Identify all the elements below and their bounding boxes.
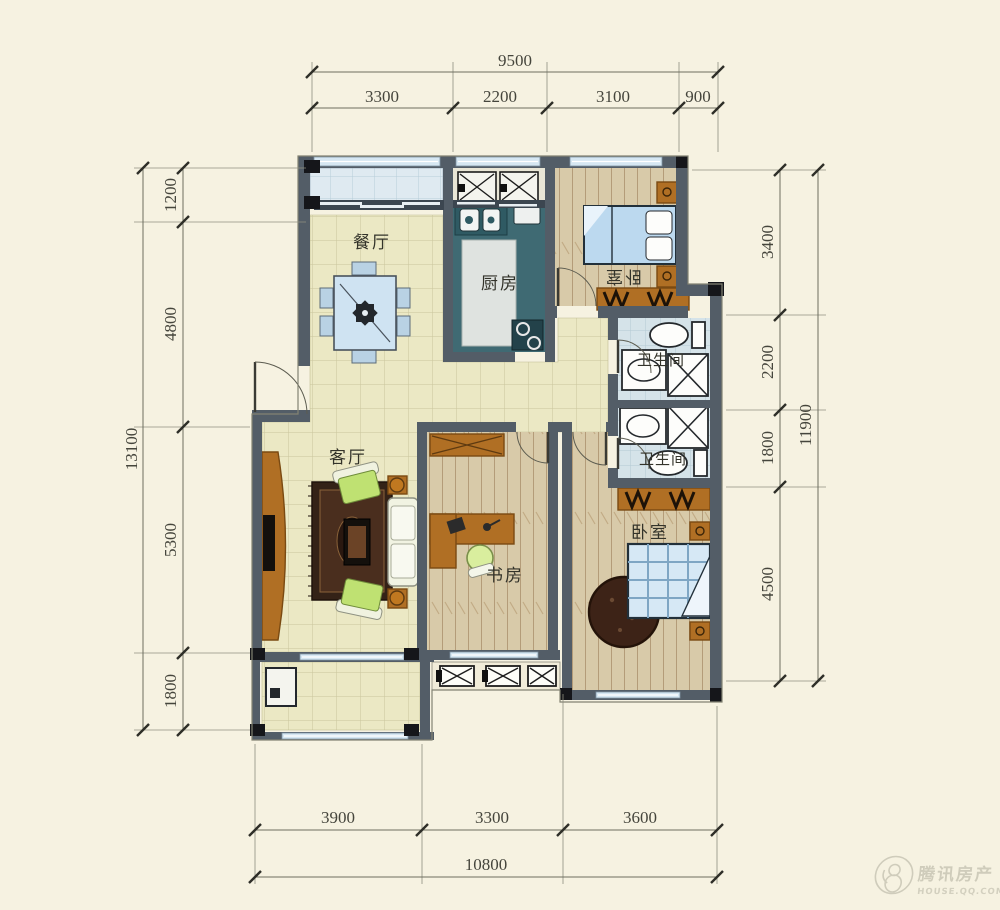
window-storage bbox=[456, 157, 540, 166]
label-kitchen: 厨房 bbox=[481, 274, 519, 294]
window-living-balcony bbox=[300, 654, 404, 660]
label-bathroom-bottom: 卫生间 bbox=[639, 450, 687, 468]
sliding-door-kitchen-north bbox=[453, 200, 545, 208]
dimension-chain-right: 11900 3400 2200 1800 4500 bbox=[758, 225, 815, 601]
window-balcony-bottom bbox=[282, 733, 408, 739]
washer bbox=[266, 668, 296, 706]
window-study-south bbox=[450, 652, 538, 658]
label-bathroom-top: 卫生间 bbox=[637, 351, 685, 369]
dim-bottom-total: 10800 bbox=[465, 855, 508, 874]
dim-right-total: 11900 bbox=[796, 404, 815, 446]
window-bedroom-top bbox=[570, 157, 662, 166]
dim-right-seg-0: 3400 bbox=[758, 225, 777, 259]
dim-right-seg-1: 2200 bbox=[758, 345, 777, 379]
dim-left-seg-0: 1200 bbox=[161, 178, 180, 212]
label-study: 书房 bbox=[486, 566, 524, 586]
dim-bottom-seg-2: 3600 bbox=[623, 808, 657, 827]
floorplan-page: 餐厅 厨房 卧室 卫生间 卫生间 客厅 书房 卧室 bbox=[0, 0, 1000, 910]
dining-table bbox=[320, 262, 410, 363]
watermark-site: HOUSE.QQ.COM bbox=[917, 887, 1000, 897]
dimension-chain-top: 9500 3300 2200 3100 900 bbox=[365, 51, 711, 106]
window-bedroom-bottom bbox=[596, 692, 680, 698]
bay-units bbox=[436, 666, 556, 686]
floor-balcony-top bbox=[310, 168, 443, 205]
dimension-chain-left: 13100 1200 4800 5300 1800 bbox=[122, 178, 180, 708]
window-balcony-top bbox=[314, 157, 440, 166]
dim-right-seg-2: 1800 bbox=[758, 431, 777, 465]
label-dining: 餐厅 bbox=[353, 233, 391, 253]
dimension-chain-bottom: 10800 3900 3300 3600 bbox=[321, 808, 657, 874]
dim-left-seg-3: 1800 bbox=[161, 674, 180, 708]
dim-top-total: 9500 bbox=[498, 51, 532, 70]
sliding-door-balcony bbox=[314, 200, 444, 210]
label-bedroom-bottom: 卧室 bbox=[631, 523, 669, 543]
dim-left-total: 13100 bbox=[122, 428, 141, 471]
tencent-logo-icon bbox=[874, 857, 915, 894]
dim-top-seg-3: 900 bbox=[685, 87, 711, 106]
dim-left-seg-2: 5300 bbox=[161, 523, 180, 557]
entry-door bbox=[255, 362, 307, 414]
dim-top-seg-0: 3300 bbox=[365, 87, 399, 106]
watermark: 腾讯房产 HOUSE.QQ.COM bbox=[873, 857, 1000, 897]
watermark-brand: 腾讯房产 bbox=[917, 864, 995, 885]
dim-top-seg-2: 3100 bbox=[596, 87, 630, 106]
dim-bottom-seg-1: 3300 bbox=[475, 808, 509, 827]
label-bedroom-top: 卧室 bbox=[604, 266, 642, 286]
dim-bottom-seg-0: 3900 bbox=[321, 808, 355, 827]
dim-right-seg-3: 4500 bbox=[758, 567, 777, 601]
floorplan-svg: 餐厅 厨房 卧室 卫生间 卫生间 客厅 书房 卧室 bbox=[0, 0, 1000, 910]
label-living: 客厅 bbox=[329, 448, 367, 468]
dim-top-seg-1: 2200 bbox=[483, 87, 517, 106]
dim-left-seg-1: 4800 bbox=[161, 307, 180, 341]
